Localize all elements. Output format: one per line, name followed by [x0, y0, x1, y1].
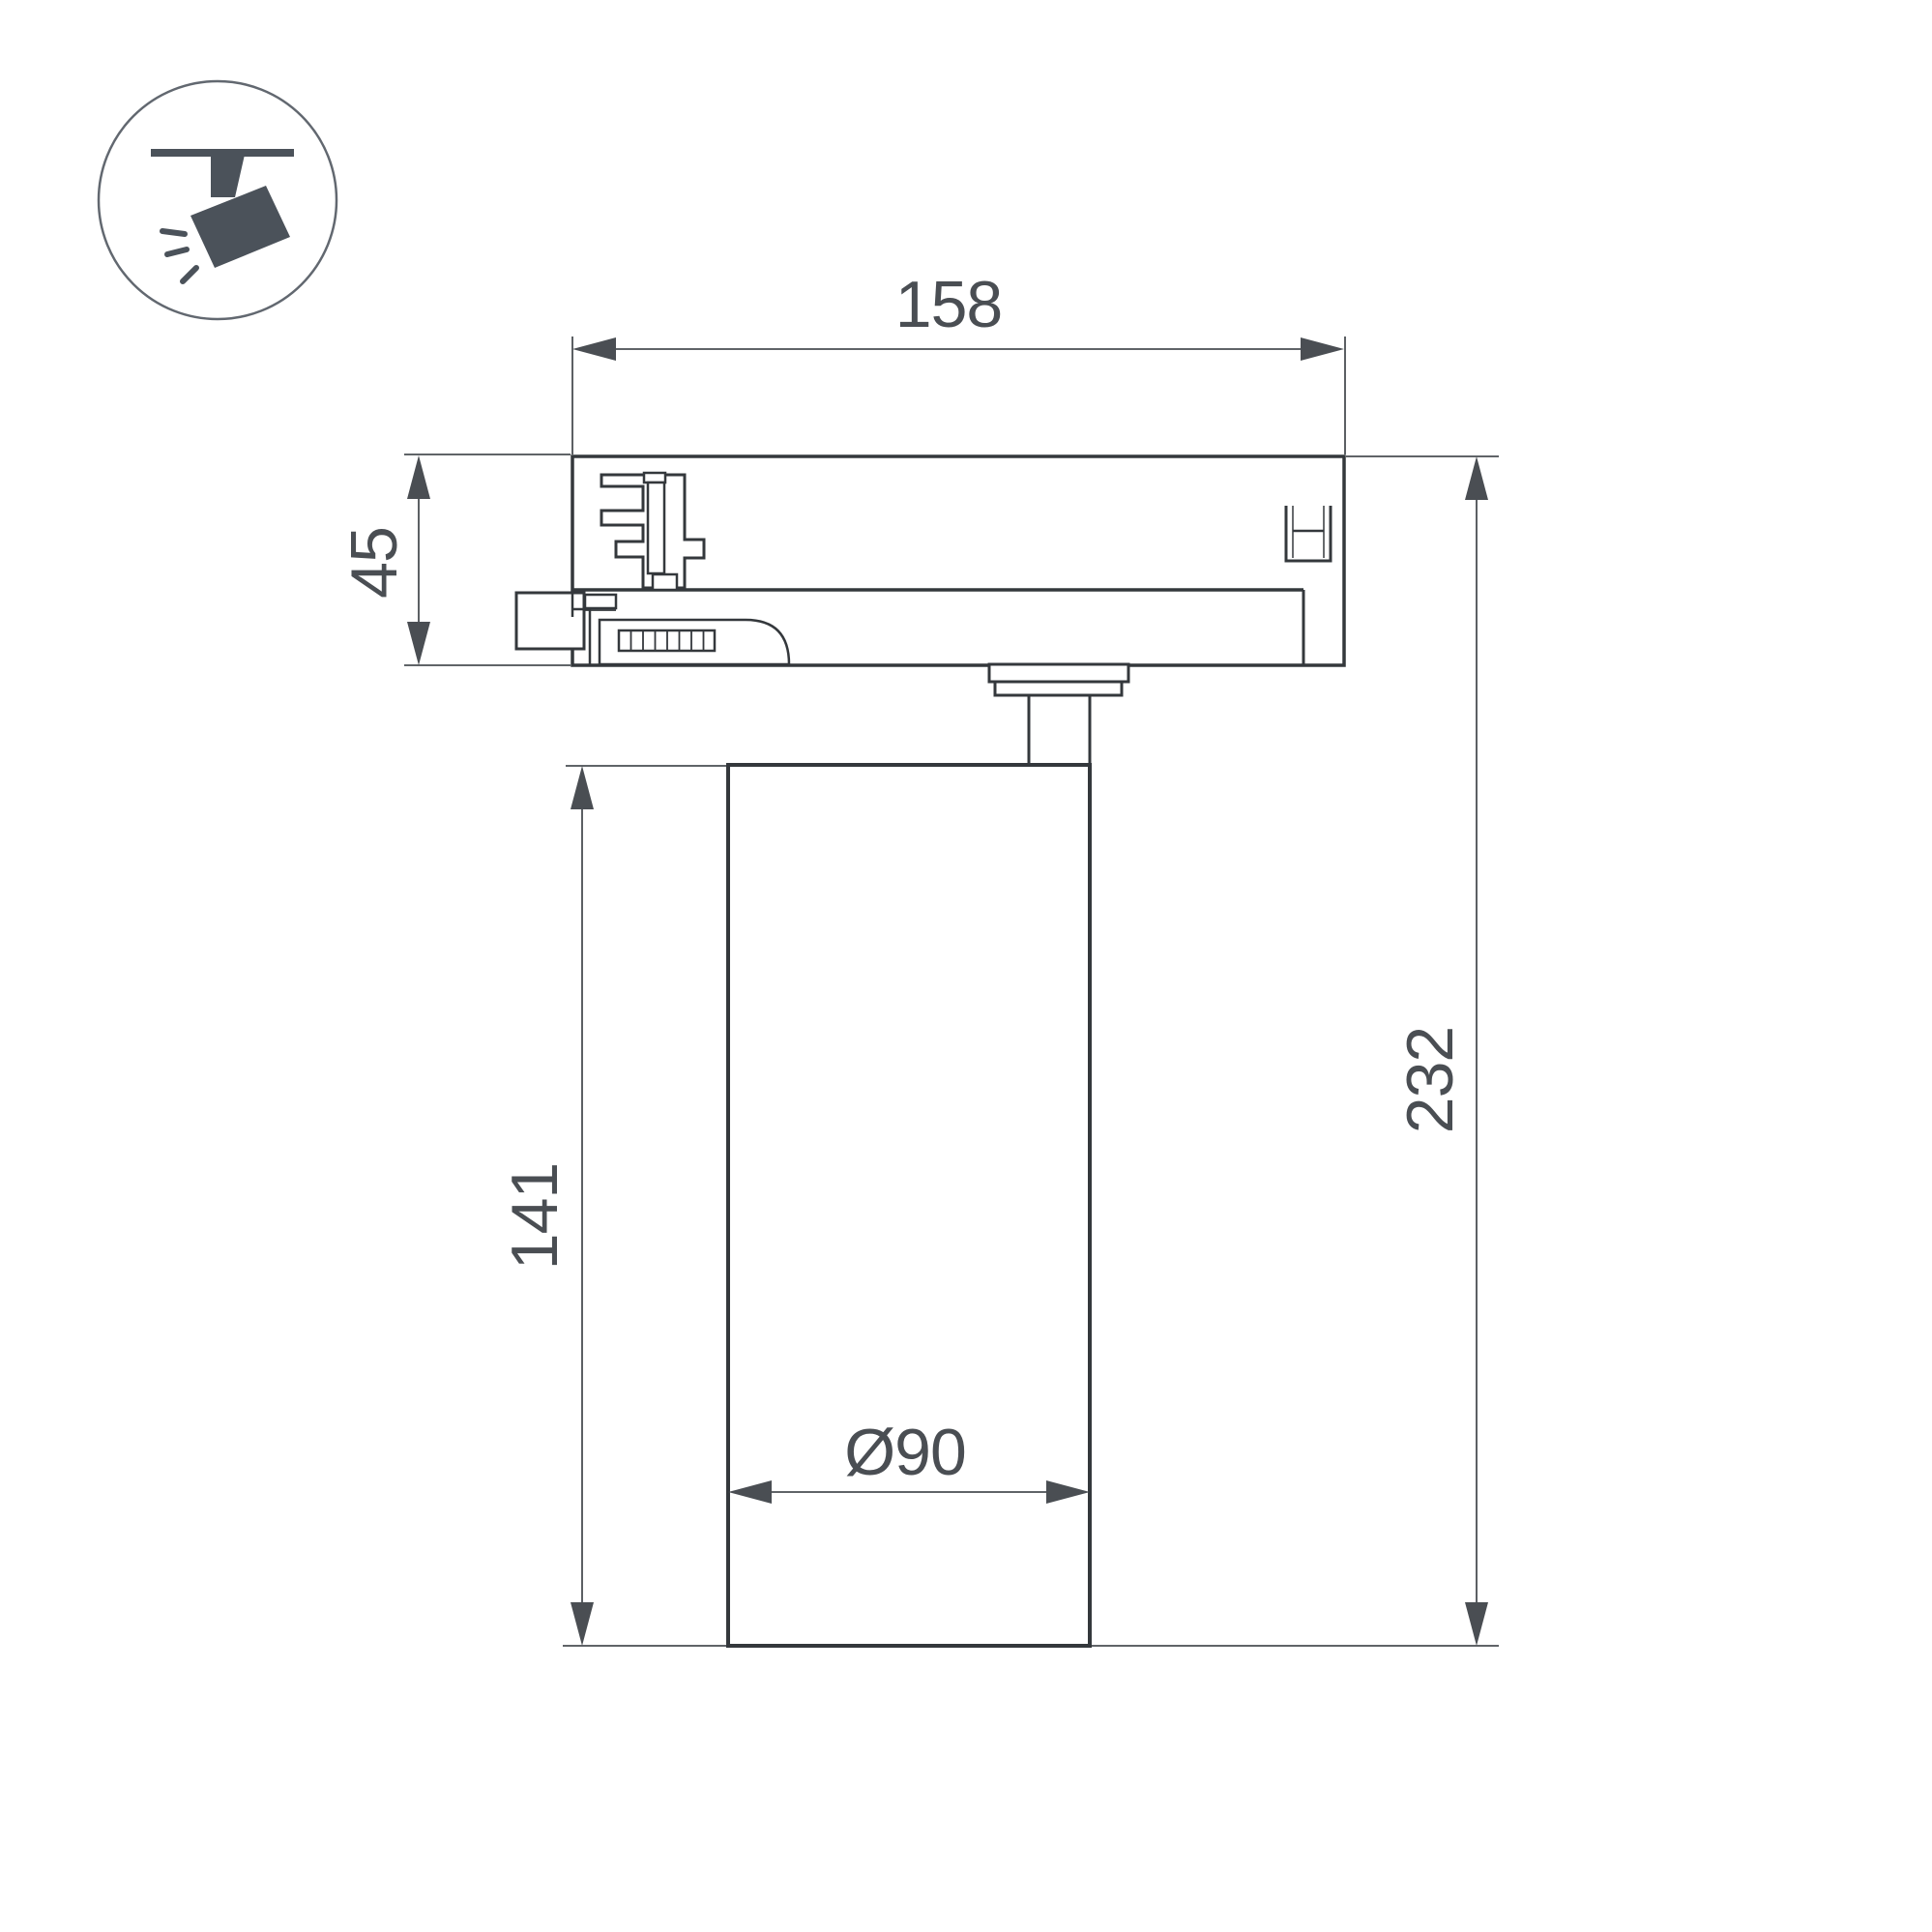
- dimension-label-45: 45: [337, 527, 411, 599]
- technical-drawing: 158 45 141 232 Ø90: [0, 0, 1932, 1932]
- dimension-label-232: 232: [1393, 1027, 1467, 1133]
- mount-plate-upper: [989, 664, 1128, 682]
- arrowhead-down: [1465, 1602, 1488, 1646]
- dimension-label-158: 158: [895, 268, 1002, 341]
- dimension-body-height: 141: [498, 766, 726, 1646]
- dimension-label-141: 141: [498, 1163, 571, 1270]
- pivot-stem: [1029, 695, 1090, 765]
- icon-circle-border: [99, 81, 337, 319]
- latch-clip: [585, 595, 616, 608]
- track-spotlight-icon: [99, 81, 337, 319]
- icon-light-ray: [162, 231, 185, 234]
- drawing-canvas: 158 45 141 232 Ø90: [0, 0, 1932, 1932]
- lamp-body-cylinder: [728, 765, 1090, 1646]
- arrowhead-down: [407, 622, 430, 665]
- arrowhead-up: [1465, 456, 1488, 500]
- arrowhead-right: [1301, 337, 1344, 361]
- pivot-mount: [989, 664, 1128, 765]
- arrowhead-up: [407, 455, 430, 499]
- arrowhead-up: [571, 766, 594, 809]
- mount-plate-lower: [995, 682, 1122, 695]
- dimension-label-d90: Ø90: [844, 1416, 966, 1489]
- prong-pin-foot: [653, 574, 677, 590]
- latch-knob: [516, 593, 584, 649]
- track-adapter: [516, 456, 1344, 665]
- dimension-adapter-width: 158: [572, 268, 1345, 454]
- arrowhead-left: [572, 337, 616, 361]
- prong-pin-cap: [644, 473, 665, 483]
- prong-pin-rod: [648, 483, 664, 573]
- arrowhead-down: [571, 1602, 594, 1646]
